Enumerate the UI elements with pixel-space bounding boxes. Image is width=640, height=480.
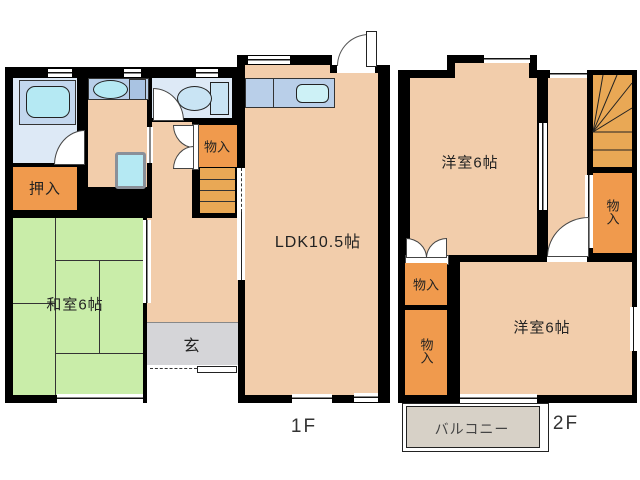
ldk-south-window-2: [354, 393, 378, 402]
f2-closet-low-label: 物入: [417, 338, 436, 364]
genkan-label: 玄: [183, 332, 200, 356]
f1-stairs: [200, 168, 235, 213]
stair-tread: [200, 179, 235, 180]
toilet-tank: [210, 82, 229, 115]
floorplan-canvas: 押入 物入 和室6帖 玄: [0, 0, 640, 480]
floor2-label: 2F: [553, 413, 579, 435]
opening-dashed-line: [241, 168, 242, 212]
entrance-door-leaf: [197, 366, 237, 373]
opening-line: [241, 212, 242, 280]
washing-machine-pan: [115, 152, 146, 189]
f2-bump-floor: [455, 63, 529, 78]
ldk-bump-floor: [245, 65, 330, 78]
f2-bedroom-north-label: 洋室6帖: [441, 152, 498, 173]
f2-bedroom-north-sliding-door: [539, 123, 547, 210]
ldk-label: LDK10.5帖: [275, 228, 361, 252]
backdoor-swing-arc: [337, 34, 369, 66]
stair-tread: [200, 190, 235, 191]
floor1-label: 1F: [291, 416, 317, 438]
washroom-window: [124, 69, 141, 77]
tatami-line: [55, 260, 143, 261]
f2-bump-window: [484, 55, 530, 63]
stair-tread: [200, 201, 235, 202]
f2-bedroom-south-east-window: [630, 307, 637, 351]
f2-hall-top-window: [550, 70, 587, 78]
washbasin: [93, 80, 128, 99]
wash-cabinet: [129, 79, 146, 100]
counter-divider: [273, 79, 274, 107]
f1-hall-lower: [147, 218, 238, 322]
toilet-bowl: [177, 86, 212, 111]
bathroom-window: [48, 69, 72, 77]
washitsu-label: 和室6帖: [46, 294, 103, 315]
oshiire-label: 押入: [29, 178, 61, 199]
balcony-label: バルコニー: [435, 419, 510, 439]
f2-bedroom-south-south-window: [460, 394, 537, 403]
entrance-dashed-line: [150, 368, 197, 369]
f1-entrance-notch: [147, 374, 238, 403]
f2-stairs: [587, 70, 637, 170]
washitsu-hall-sliding-door: [143, 220, 151, 303]
washroom-door: [147, 127, 153, 163]
ldk-south-window-1: [292, 394, 332, 403]
tatami-line: [55, 353, 143, 354]
toilet-window: [196, 69, 218, 77]
f1-monoire-label: 物入: [204, 137, 230, 156]
ldk-bump-window: [248, 56, 290, 64]
washitsu-south-window: [57, 394, 143, 403]
f2-closet-mid-label: 物入: [413, 275, 439, 294]
f2-bump-side-right: [529, 55, 537, 78]
kitchen-sink: [296, 84, 329, 103]
backdoor-leaf: [366, 31, 377, 67]
f2-bump-side-left: [447, 55, 455, 78]
f2-bedroom-south-label: 洋室6帖: [513, 317, 570, 338]
f2-closet-right-label: 物入: [603, 199, 622, 225]
bathtub: [26, 86, 70, 118]
